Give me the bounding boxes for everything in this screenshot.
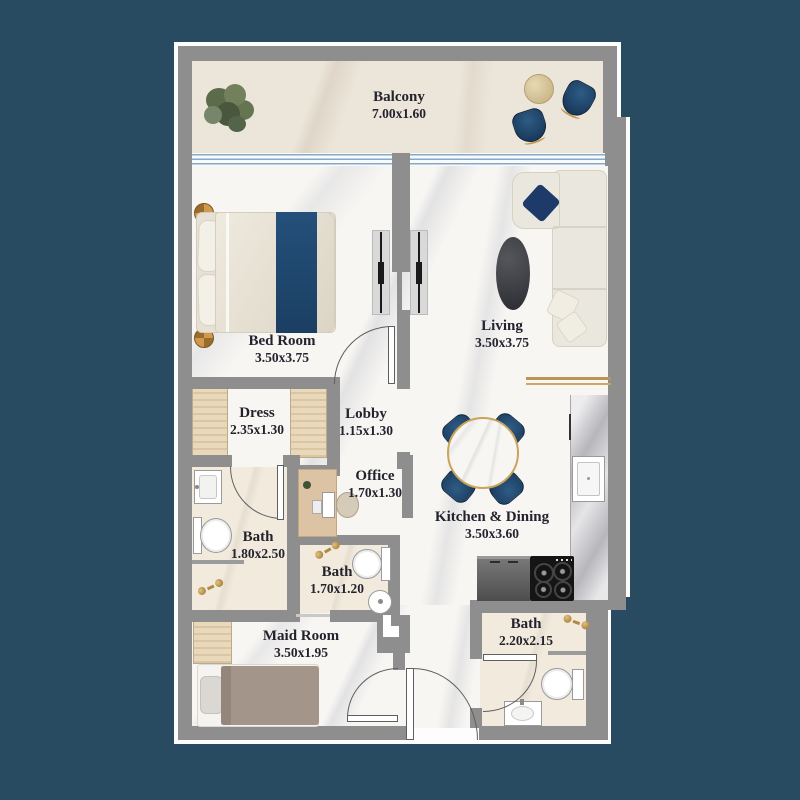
wall-left xyxy=(178,46,192,740)
room-name: Bath xyxy=(277,564,397,581)
label-living: Living 3.50x3.75 xyxy=(442,318,562,351)
sofa-seam-1 xyxy=(553,226,606,228)
duct-tab xyxy=(391,615,399,626)
toilet-guest-tank xyxy=(572,669,584,700)
room-name: Maid Room xyxy=(241,628,361,645)
maid-bed-fold xyxy=(221,666,231,725)
room-name: Balcony xyxy=(339,89,459,106)
dining-table xyxy=(447,417,519,489)
maid-bed-pillow xyxy=(200,676,223,714)
room-dims: 3.50x3.75 xyxy=(222,350,342,366)
plant-leaf-5 xyxy=(204,106,222,124)
plant-leaf-6 xyxy=(228,116,246,132)
room-name: Bath xyxy=(198,529,318,546)
room-dims: 7.00x1.60 xyxy=(339,106,459,122)
room-name: Office xyxy=(330,468,420,485)
fridge-counter xyxy=(477,556,530,601)
desk-drawer xyxy=(312,500,322,514)
bed-duvet xyxy=(215,212,335,333)
sofa-seam-2 xyxy=(553,288,606,290)
console-table-line-2 xyxy=(526,383,611,385)
room-name: Lobby xyxy=(306,406,426,423)
sink-guest-tap xyxy=(520,699,524,705)
burner-1 xyxy=(534,563,554,583)
desk-plant-icon xyxy=(303,481,311,489)
tv-mid-living xyxy=(416,262,422,284)
wall-kitchen-bottom xyxy=(470,600,608,613)
label-office: Office 1.70x1.30 xyxy=(330,468,420,501)
entrance-door-leaf xyxy=(406,668,414,740)
maid-bath-threshold xyxy=(296,614,330,617)
room-name: Dress xyxy=(197,405,317,422)
room-dims: 1.80x2.50 xyxy=(198,546,318,562)
label-kitchen-dining: Kitchen & Dining 3.50x3.60 xyxy=(412,509,572,542)
fridge-handle-1 xyxy=(490,561,500,563)
room-dims: 2.20x2.15 xyxy=(466,633,586,649)
wall-bottom-left xyxy=(178,726,411,740)
wall-top xyxy=(178,46,617,61)
label-bath-guest: Bath 2.20x2.15 xyxy=(466,616,586,649)
counter-handle xyxy=(569,414,571,440)
tv-mid-bedroom xyxy=(378,262,384,284)
burner-3 xyxy=(535,581,552,598)
label-lobby: Lobby 1.15x1.30 xyxy=(306,406,426,439)
bed-runner xyxy=(276,212,317,333)
bath-guest-door-leaf xyxy=(483,654,537,661)
label-bath-master: Bath 1.80x2.50 xyxy=(198,529,318,562)
room-dims: 2.35x1.30 xyxy=(197,422,317,438)
label-balcony: Balcony 7.00x1.60 xyxy=(339,89,459,122)
room-dims: 1.70x1.30 xyxy=(330,485,420,501)
bedroom-door-leaf xyxy=(388,326,395,384)
balcony-table xyxy=(524,74,554,104)
vanity-tap xyxy=(195,485,199,489)
room-name: Bed Room xyxy=(222,333,342,350)
corner-sink-tap xyxy=(378,599,383,604)
bath-guest-partition xyxy=(548,651,586,655)
label-maid-room: Maid Room 3.50x1.95 xyxy=(241,628,361,661)
wall-right-lower xyxy=(586,597,608,740)
maid-bed-blanket xyxy=(221,666,319,725)
wall-lobby-right xyxy=(397,310,410,389)
fridge-handle-2 xyxy=(508,561,518,563)
toilet-guest-bowl xyxy=(541,668,573,700)
wall-maid-top-a xyxy=(192,610,296,622)
room-dims: 3.50x3.60 xyxy=(412,526,572,542)
label-bedroom: Bed Room 3.50x3.75 xyxy=(222,333,342,366)
wall-right-main xyxy=(608,117,626,602)
floor-plan: Balcony 7.00x1.60 Bed Room 3.50x3.75 Liv… xyxy=(0,0,800,800)
label-dress: Dress 2.35x1.30 xyxy=(197,405,317,438)
hob-knob-dots xyxy=(556,559,572,561)
room-dims: 1.15x1.30 xyxy=(306,423,426,439)
sink-guest-basin xyxy=(511,706,534,721)
bath-master-door-leaf xyxy=(277,465,284,520)
vanity-basin xyxy=(199,475,217,499)
room-name: Kitchen & Dining xyxy=(412,509,572,526)
wall-dress-bottom-a xyxy=(192,455,232,467)
kitchen-sink-drain xyxy=(587,477,590,480)
wall-bed-living xyxy=(392,160,410,272)
console-table-line-1 xyxy=(526,377,611,380)
bed-duvet-fold xyxy=(226,213,229,332)
room-dims: 1.70x1.20 xyxy=(277,581,397,597)
room-dims: 3.50x3.75 xyxy=(442,335,562,351)
coffee-table xyxy=(496,237,530,310)
wall-bedroom-bottom xyxy=(192,377,338,389)
burner-2 xyxy=(553,562,572,581)
room-name: Living xyxy=(442,318,562,335)
label-bath-inner: Bath 1.70x1.20 xyxy=(277,564,397,597)
maid-wardrobe xyxy=(193,618,232,664)
maid-door-leaf xyxy=(347,715,398,722)
burner-4 xyxy=(554,581,572,599)
room-name: Bath xyxy=(466,616,586,633)
room-dims: 3.50x1.95 xyxy=(241,645,361,661)
wall-bottom-right xyxy=(479,726,608,740)
